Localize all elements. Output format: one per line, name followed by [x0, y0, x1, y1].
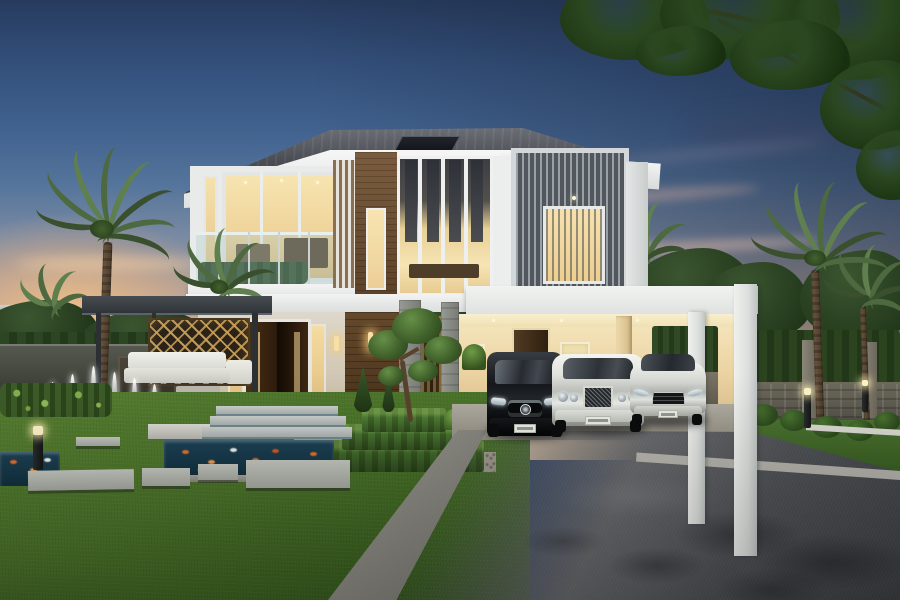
- second-floor-corner: [626, 162, 648, 298]
- vertical-slat-column: [333, 160, 355, 288]
- stepping-stone: [198, 464, 238, 480]
- pendant-light: [572, 196, 576, 200]
- mercedes-star-badge: [520, 404, 531, 415]
- stepping-stone: [28, 469, 134, 491]
- topiary-foliage: [378, 366, 404, 386]
- suv-license-plate: [514, 424, 536, 433]
- coupe-windshield: [641, 354, 695, 371]
- coupe-wheel: [632, 414, 642, 425]
- sedan-headlight: [618, 394, 626, 402]
- sedan-headlight: [570, 394, 578, 402]
- sedan-mesh-grille: [585, 388, 611, 407]
- recessed-light: [636, 319, 639, 322]
- koi-fish: [230, 448, 237, 452]
- stepping-stone: [246, 460, 350, 488]
- ceiling-light: [316, 181, 319, 184]
- railing-post: [278, 232, 280, 286]
- suv-wheel: [488, 424, 499, 437]
- bollard-light-glow: [804, 388, 811, 395]
- photo-luxury-villa-dusk: [0, 0, 900, 600]
- suv-windshield: [495, 360, 555, 384]
- recessed-light: [560, 319, 563, 322]
- ceiling-light: [280, 179, 283, 182]
- glass-slat: [405, 160, 417, 242]
- topiary-foliage: [408, 360, 438, 382]
- skylight-panel: [394, 136, 461, 152]
- koi-fish: [10, 460, 17, 464]
- pergola-roof: [82, 296, 272, 313]
- interior-furniture: [409, 264, 479, 278]
- accent-plant: [462, 344, 486, 370]
- tiered-hedge-top: [362, 408, 446, 432]
- silver-coupe-aston-martin: [630, 352, 706, 426]
- glass-slat: [427, 160, 439, 242]
- palm-crown: [90, 220, 114, 238]
- step-tread: [210, 416, 346, 425]
- railing-post: [308, 232, 310, 286]
- koi-fish: [182, 450, 189, 454]
- outdoor-sofa-seat: [124, 368, 230, 383]
- portal-outer-leg: [734, 284, 757, 556]
- sedan-windshield: [563, 358, 633, 379]
- topiary-foliage: [424, 336, 462, 364]
- koi-fish: [44, 458, 51, 462]
- palm-crown: [210, 280, 228, 294]
- step-tread: [216, 406, 338, 414]
- ceiling-light: [244, 181, 247, 184]
- stepping-stone: [142, 468, 190, 486]
- tree-canopy: [636, 26, 726, 76]
- carport-canopy-beam: [466, 286, 758, 314]
- bollard-light-glow: [33, 426, 43, 435]
- coupe-wheel: [692, 414, 702, 425]
- sedan-headlight: [558, 392, 568, 402]
- coupe-license-plate: [658, 410, 678, 418]
- recessed-light: [492, 319, 495, 322]
- louver-box-lit-window: [543, 206, 605, 284]
- center-slat-windows: [397, 156, 493, 296]
- bollard-light-glow: [862, 380, 868, 386]
- suv-headlight: [491, 397, 507, 406]
- wall-sconce: [334, 336, 339, 351]
- coupe-grille: [652, 392, 685, 405]
- white-pier: [493, 156, 511, 298]
- stepping-stone: [76, 437, 120, 446]
- pergola-post: [96, 313, 101, 393]
- pergola-post: [252, 313, 258, 395]
- palm-crown: [804, 250, 826, 266]
- glass-slat: [471, 160, 483, 242]
- koi-fish: [272, 449, 279, 453]
- sedan-license-plate: [585, 416, 611, 425]
- koi-fish: [310, 452, 317, 456]
- glass-slat: [449, 160, 461, 242]
- wood-panel-window: [366, 208, 386, 290]
- step-tread: [202, 427, 352, 437]
- variegated-hedge-row: [0, 383, 112, 417]
- sedan-wheel: [555, 420, 566, 432]
